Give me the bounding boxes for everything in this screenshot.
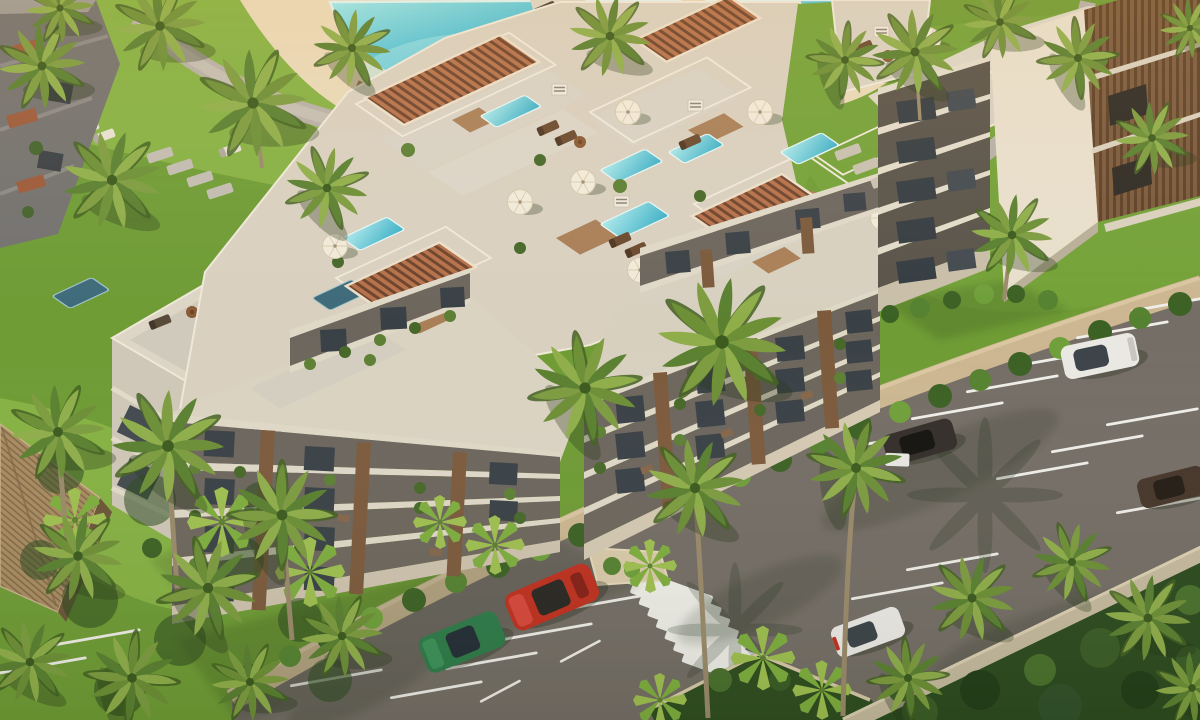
aerial-render bbox=[0, 0, 1200, 720]
rendered-scene bbox=[0, 0, 1200, 720]
golden-hour-grade bbox=[0, 0, 1200, 720]
